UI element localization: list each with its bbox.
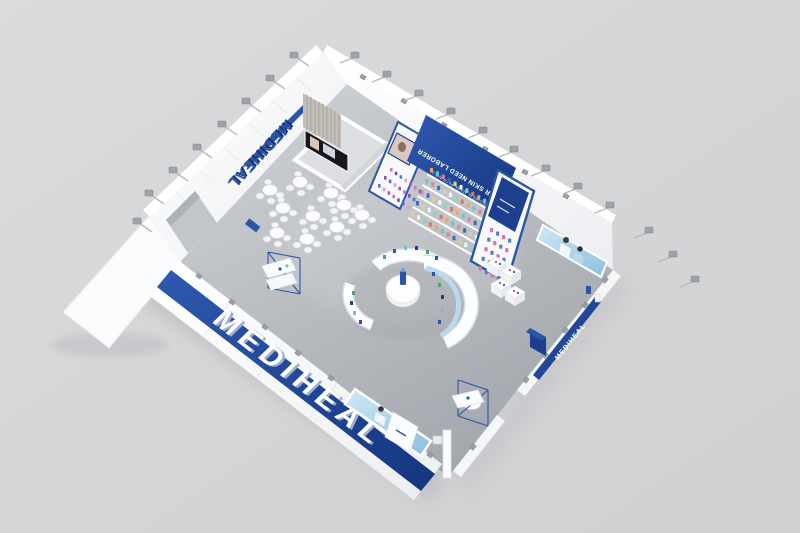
floor-box [433, 436, 442, 444]
corner-post [443, 430, 451, 478]
booth-render: MEDIHEAL MEDIHEAL [0, 0, 800, 533]
booth-render-canvas: MEDIHEAL MEDIHEAL [0, 0, 800, 533]
hero-product [400, 271, 406, 285]
wall-top-figure [586, 286, 591, 294]
wall-top-figure-2 [595, 294, 600, 302]
case-photo-face [398, 142, 406, 152]
